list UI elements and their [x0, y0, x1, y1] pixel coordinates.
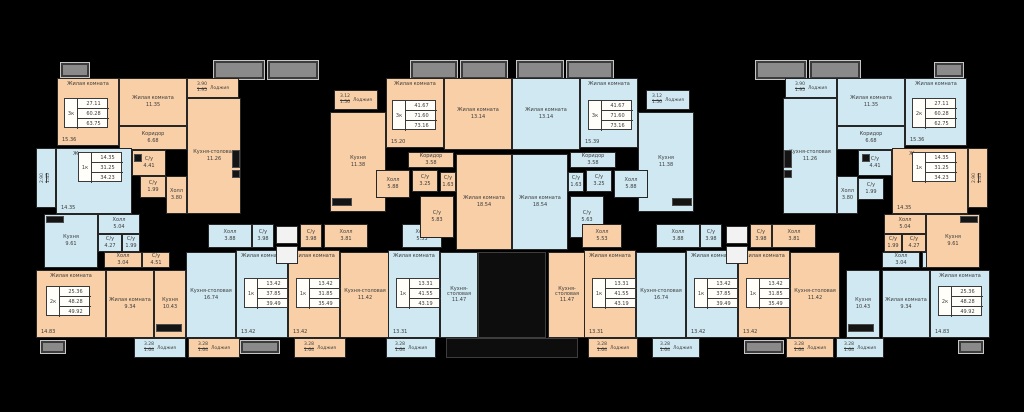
fixture — [156, 324, 182, 332]
apartment-usable-area: 31.85 — [310, 289, 341, 299]
loggia-label: Лоджия — [610, 346, 629, 351]
loggia: 3.281.64Лоджия — [134, 338, 186, 358]
room-label: Кухня — [63, 235, 79, 240]
loggia-content: 3.281.64Лоджия — [844, 343, 876, 353]
room-label: С/у — [421, 175, 429, 180]
apartment-living-area: 41.67 — [406, 101, 437, 111]
room-label: С/у — [757, 230, 765, 235]
room-label: Кухня-столовая — [549, 287, 585, 298]
room-label: С/у — [707, 230, 715, 235]
apartment-info-table: 2к25.3648.2849.92 — [46, 286, 90, 316]
apartment-total-area: 43.19 — [606, 299, 637, 309]
loggia-depth: 1.56 — [340, 100, 350, 106]
room-label: Кухня — [855, 298, 871, 303]
apartment-info-table: 1к14.3531.2534.23 — [78, 152, 122, 182]
apartment-type: 3к — [589, 101, 602, 131]
room-area: 6.68 — [147, 139, 158, 144]
loggia: 3.121.56Лоджия — [646, 90, 690, 110]
room-area: 3.81 — [788, 237, 799, 242]
room-label: С/у — [910, 237, 918, 242]
loggia-label: Лоджия — [353, 98, 372, 103]
room-area: 5.63 — [581, 218, 592, 223]
apartment-info-table: 1к13.4231.8535.49 — [746, 278, 790, 308]
apartment-type: 3к — [393, 101, 406, 131]
loggia-content: 3.281.64Лоджия — [794, 343, 826, 353]
room: С/у3.98 — [252, 224, 274, 248]
balcony — [40, 340, 66, 354]
room-area: 1.99 — [865, 190, 876, 195]
room-label: Коридор — [420, 154, 443, 159]
loggia-content: 3.281.64Лоджия — [395, 343, 427, 353]
room-label: Холл — [596, 230, 609, 235]
room-area: 3.98 — [257, 237, 268, 242]
room: Коридор3.58 — [408, 152, 454, 168]
apartment-type: 1к — [593, 279, 606, 309]
room-area: 15.20 — [391, 140, 405, 145]
apartment-living-area: 41.67 — [602, 101, 633, 111]
apartment-total-area: 35.49 — [760, 299, 791, 309]
loggia-label: Лоджия — [808, 86, 827, 91]
room-area: 10.43 — [163, 305, 177, 310]
room: Жилая комната13.14 — [512, 78, 580, 150]
loggia: 3.121.56Лоджия — [334, 90, 378, 110]
apartment-usable-area: 37.85 — [258, 289, 289, 299]
loggia: 2.901.45 — [968, 148, 988, 208]
loggia-dims: 3.121.56 — [652, 95, 662, 105]
apartment-living-area: 13.42 — [310, 279, 341, 289]
room-area: 15.36 — [910, 138, 924, 143]
room: С/у3.98 — [300, 224, 322, 248]
room-label: Жилая комната — [463, 196, 505, 201]
loggia-content: 3.281.64Лоджия — [144, 343, 176, 353]
room-area: 9.34 — [124, 305, 135, 310]
room-area: 14.83 — [935, 330, 949, 335]
apartment-living-area: 14.35 — [92, 153, 123, 163]
room-label: С/у — [889, 237, 897, 242]
room-area: 11.47 — [452, 298, 466, 303]
room-label: Кухня-столовая — [441, 287, 477, 298]
room-area: 13.31 — [393, 330, 407, 335]
apartment-info-table: 1к13.4237.8539.49 — [244, 278, 288, 308]
apartment-total-area: 73.16 — [406, 121, 437, 131]
room-label: Кухня-столовая — [193, 150, 235, 155]
loggia-content: 3.901.95Лоджия — [197, 83, 229, 93]
room-area: 5.04 — [113, 225, 124, 230]
apartment-usable-area: 31.25 — [92, 163, 123, 173]
room-area: 13.14 — [471, 115, 485, 120]
loggia-dims: 2.901.45 — [973, 173, 983, 183]
apartment-living-area: 13.31 — [606, 279, 637, 289]
balcony — [566, 60, 614, 80]
apartment-type: 1к — [79, 153, 92, 183]
room-area: 9.61 — [65, 242, 76, 247]
apartment-usable-area: 37.85 — [708, 289, 739, 299]
apartment-total-area: 63.75 — [78, 119, 109, 129]
room-label: Кухня — [658, 156, 674, 161]
room-label: Кухня — [945, 235, 961, 240]
room: С/у3.25 — [412, 170, 438, 192]
loggia-label: Лоджия — [408, 346, 427, 351]
balcony — [460, 60, 508, 80]
room-label: Кухня-столовая — [794, 289, 836, 294]
apartment-usable-area: 48.28 — [60, 297, 91, 307]
balcony — [958, 340, 984, 354]
loggia: 3.901.95Лоджия — [785, 78, 837, 98]
room-area: 15.39 — [585, 140, 599, 145]
loggia-content: 2.901.45 — [41, 173, 51, 183]
apartment-type: 1к — [747, 279, 760, 309]
apartment-living-area: 25.36 — [60, 287, 91, 297]
stair-elevator-box — [276, 246, 298, 264]
apartment-total-area: 34.23 — [92, 173, 123, 183]
room-label: Холл — [117, 254, 130, 259]
apartment-living-area: 25.36 — [952, 287, 983, 297]
room-area: 11.26 — [803, 157, 817, 162]
room: Жилая комната18.54 — [512, 154, 568, 250]
room-area: 14.35 — [897, 206, 911, 211]
balcony — [240, 340, 280, 354]
loggia-label: Лоджия — [807, 346, 826, 351]
loggia-label: Лоджия — [665, 98, 684, 103]
room-label: С/у — [583, 211, 591, 216]
room-area: 18.54 — [477, 203, 491, 208]
room-area: 5.53 — [596, 237, 607, 242]
room-label: С/у — [127, 237, 135, 242]
room-area: 9.34 — [900, 305, 911, 310]
apartment-total-area: 49.92 — [60, 307, 91, 317]
loggia: 3.281.64Лоджия — [836, 338, 884, 358]
loggia-label: Лоджия — [317, 346, 336, 351]
loggia: 3.281.64Лоджия — [652, 338, 700, 358]
room: С/у4.27 — [98, 234, 122, 252]
room-label: Холл — [224, 230, 237, 235]
room-label: Кухня-столовая — [789, 150, 831, 155]
room-label: С/у — [444, 176, 452, 181]
loggia-content: 3.281.64Лоджия — [597, 343, 629, 353]
room-area: 3.04 — [117, 261, 128, 266]
balcony — [809, 60, 861, 80]
room-area: 11.35 — [146, 103, 160, 108]
loggia-depth: 1.64 — [198, 348, 208, 354]
loggia: 3.901.95Лоджия — [187, 78, 239, 98]
room-label: Жилая комната — [67, 82, 109, 87]
building-core — [478, 252, 546, 338]
apartment-usable-area: 31.85 — [760, 289, 791, 299]
loggia-content: 3.281.64Лоджия — [660, 343, 692, 353]
room-area: 13.42 — [691, 330, 705, 335]
room-label: Жилая комната — [132, 96, 174, 101]
loggia-content: 2.901.45 — [973, 173, 983, 183]
room-label: С/у — [259, 230, 267, 235]
room-label: Кухня — [350, 156, 366, 161]
room-area: 1.99 — [147, 188, 158, 193]
room-area: 3.80 — [842, 196, 853, 201]
room: С/у1.63 — [440, 172, 456, 192]
room-area: 10.43 — [856, 305, 870, 310]
apartment-total-area: 49.92 — [952, 307, 983, 317]
room-area: 13.14 — [539, 115, 553, 120]
room: Кухня-столовая11.47 — [548, 252, 586, 338]
apartment-info-table: 3к41.6771.6073.16 — [588, 100, 632, 130]
apartment-living-area: 14.35 — [926, 153, 957, 163]
room-area: 3.25 — [593, 182, 604, 187]
fixture — [862, 154, 870, 162]
room-area: 1.99 — [887, 244, 898, 249]
room-area: 3.88 — [672, 237, 683, 242]
loggia-depth: 1.64 — [597, 348, 607, 354]
apartment-type: 2к — [913, 99, 926, 129]
loggia-dims: 3.281.64 — [597, 343, 607, 353]
room-area: 1.99 — [125, 244, 136, 249]
apartment-info-table: 2к27.1160.2862.75 — [912, 98, 956, 128]
room-label: Жилая комната — [525, 108, 567, 113]
balcony — [744, 340, 784, 354]
room-label: Холл — [899, 218, 912, 223]
apartment-info-table: 1к13.3141.5543.19 — [592, 278, 636, 308]
room-label: С/у — [145, 157, 153, 162]
loggia-dims: 3.281.64 — [660, 343, 670, 353]
room: С/у3.98 — [750, 224, 772, 248]
room-label: Кухня-столовая — [344, 289, 386, 294]
apartment-usable-area: 71.60 — [406, 111, 437, 121]
room-area: 4.27 — [104, 244, 115, 249]
loggia-dims: 3.281.64 — [198, 343, 208, 353]
room-label: Жилая комната — [850, 96, 892, 101]
room-area: 3.04 — [895, 261, 906, 266]
apartment-total-area: 39.49 — [708, 299, 739, 309]
apartment-type: 1к — [397, 279, 410, 309]
apartment-type: 2к — [47, 287, 60, 317]
room: С/у1.99 — [122, 234, 140, 252]
room: Холл3.04 — [104, 252, 142, 268]
balcony — [267, 60, 319, 80]
apartment-usable-area: 71.60 — [602, 111, 633, 121]
apartment-usable-area: 60.28 — [926, 109, 957, 119]
room: Жилая комната11.35 — [837, 78, 905, 126]
room-area: 5.04 — [899, 225, 910, 230]
room: Жилая комната11.35 — [119, 78, 187, 126]
fixture — [134, 154, 142, 162]
apartment-total-area: 43.19 — [410, 299, 441, 309]
room-label: Жилая комната — [743, 254, 785, 259]
fixture — [332, 198, 352, 206]
loggia-content: 3.281.64Лоджия — [198, 343, 230, 353]
balcony — [516, 60, 564, 80]
loggia-depth: 1.45 — [46, 173, 52, 183]
room-label: Кухня-столовая — [190, 289, 232, 294]
room-label: Холл — [625, 178, 638, 183]
loggia-depth: 1.95 — [197, 88, 207, 94]
room-area: 5.83 — [431, 218, 442, 223]
loggia-depth: 1.56 — [652, 100, 662, 106]
loggia: 3.281.64Лоджия — [386, 338, 436, 358]
room: С/у3.98 — [700, 224, 722, 248]
apartment-type: 2к — [939, 287, 952, 317]
room: Коридор6.68 — [837, 126, 905, 150]
room-area: 3.81 — [340, 237, 351, 242]
room-area: 16.74 — [204, 296, 218, 301]
room-label: Кухня-столовая — [640, 289, 682, 294]
room-area: 6.68 — [865, 139, 876, 144]
room: С/у1.99 — [140, 176, 166, 198]
room-label: С/у — [867, 183, 875, 188]
room-area: 11.42 — [358, 296, 372, 301]
room-label: С/у — [433, 211, 441, 216]
room: С/у1.63 — [568, 172, 584, 192]
room: Холл5.88 — [376, 170, 410, 198]
apartment-info-table: 1к13.3141.5543.19 — [396, 278, 440, 308]
room: Холл3.88 — [656, 224, 700, 248]
room-label: Жилая комната — [50, 274, 92, 279]
room-area: 3.80 — [171, 196, 182, 201]
room-area: 16.74 — [654, 296, 668, 301]
room: Холл3.80 — [166, 176, 187, 214]
room-area: 13.42 — [241, 330, 255, 335]
room: С/у5.83 — [420, 196, 454, 238]
room: С/у3.25 — [586, 170, 612, 192]
room-label: Жилая комната — [589, 254, 631, 259]
room-area: 3.88 — [224, 237, 235, 242]
room: С/у4.51 — [142, 252, 170, 268]
apartment-type: 1к — [297, 279, 310, 309]
room-area: 14.35 — [61, 206, 75, 211]
room: С/у1.99 — [858, 178, 884, 200]
loggia-content: 3.901.95Лоджия — [795, 83, 827, 93]
loggia-dims: 2.901.45 — [41, 173, 51, 183]
apartment-info-table: 1к13.4237.8539.49 — [694, 278, 738, 308]
loggia-content: 3.121.56Лоджия — [652, 95, 684, 105]
loggia-label: Лоджия — [673, 346, 692, 351]
loggia-label: Лоджия — [211, 346, 230, 351]
loggia-depth: 1.64 — [144, 348, 154, 354]
room-label: Коридор — [142, 132, 165, 137]
room-label: Холл — [672, 230, 685, 235]
room-area: 4.41 — [869, 164, 880, 169]
loggia: 3.281.64Лоджия — [588, 338, 638, 358]
room-area: 1.63 — [442, 183, 453, 188]
room: Жилая комната13.14 — [444, 78, 512, 150]
room-area: 3.58 — [425, 161, 436, 166]
fixture — [784, 150, 792, 168]
room-area: 3.25 — [419, 182, 430, 187]
room-area: 15.36 — [62, 138, 76, 143]
room: С/у4.27 — [902, 234, 926, 252]
apartment-info-table: 3к27.1160.2863.75 — [64, 98, 108, 128]
room-area: 4.41 — [143, 164, 154, 169]
apartment-living-area: 13.42 — [258, 279, 289, 289]
fixture — [232, 170, 240, 178]
room-label: С/у — [152, 254, 160, 259]
room-area: 13.31 — [589, 330, 603, 335]
apartment-type: 1к — [913, 153, 926, 183]
room: Кухня-столовая11.42 — [340, 252, 390, 338]
room: Холл5.04 — [884, 214, 926, 234]
apartment-usable-area: 48.28 — [952, 297, 983, 307]
room-label: Жилая комната — [109, 298, 151, 303]
room-label: Жилая комната — [393, 254, 435, 259]
loggia-depth: 1.64 — [844, 348, 854, 354]
loggia-depth: 1.95 — [795, 88, 805, 94]
room-label: Жилая комната — [394, 82, 436, 87]
room-area: 5.88 — [625, 185, 636, 190]
apartment-living-area: 27.11 — [78, 99, 109, 109]
room-area: 1.63 — [570, 183, 581, 188]
loggia-dims: 3.281.64 — [794, 343, 804, 353]
apartment-usable-area: 41.55 — [606, 289, 637, 299]
room: Кухня-столовая16.74 — [186, 252, 236, 338]
loggia-label: Лоджия — [210, 86, 229, 91]
stair-elevator-box — [726, 226, 748, 244]
room-label: Холл — [170, 189, 183, 194]
room-area: 11.42 — [808, 296, 822, 301]
room: Холл5.88 — [614, 170, 648, 198]
loggia-label: Лоджия — [157, 346, 176, 351]
room-label: Холл — [340, 230, 353, 235]
room: Кухня-столовая11.42 — [790, 252, 840, 338]
loggia-dims: 3.281.64 — [844, 343, 854, 353]
apartment-type: 1к — [245, 279, 258, 309]
loggia-depth: 1.64 — [304, 348, 314, 354]
apartment-info-table: 3к41.6771.6073.16 — [392, 100, 436, 130]
apartment-info-table: 1к14.3531.2534.23 — [912, 152, 956, 182]
room-area: 3.98 — [755, 237, 766, 242]
room-label: Жилая комната — [457, 108, 499, 113]
fixture — [46, 216, 64, 223]
apartment-living-area: 13.42 — [708, 279, 739, 289]
apartment-info-table: 2к25.3648.2849.92 — [938, 286, 982, 316]
apartment-total-area: 34.23 — [926, 173, 957, 183]
apartment-usable-area: 41.55 — [410, 289, 441, 299]
apartment-living-area: 13.42 — [760, 279, 791, 289]
balcony — [755, 60, 807, 80]
room: Кухня-столовая11.47 — [440, 252, 478, 338]
room: Коридор3.58 — [570, 152, 616, 168]
apartment-living-area: 27.11 — [926, 99, 957, 109]
room-label: Холл — [387, 178, 400, 183]
room: Холл5.04 — [98, 214, 140, 234]
room: Холл3.88 — [208, 224, 252, 248]
loggia: 3.281.64Лоджия — [188, 338, 240, 358]
room-area: 13.42 — [743, 330, 757, 335]
loggia-depth: 1.45 — [978, 173, 984, 183]
apartment-total-area: 39.49 — [258, 299, 289, 309]
room-area: 4.27 — [908, 244, 919, 249]
room-label: С/у — [149, 181, 157, 186]
room-label: Жилая комната — [939, 274, 981, 279]
balcony — [410, 60, 458, 80]
room-label: Холл — [788, 230, 801, 235]
loggia: 3.281.64Лоджия — [786, 338, 834, 358]
room: Жилая комната9.34 — [106, 270, 154, 338]
room-label: Холл — [113, 218, 126, 223]
room-label: Холл — [841, 189, 854, 194]
room-label: Жилая комната — [519, 196, 561, 201]
apartment-usable-area: 31.25 — [926, 163, 957, 173]
room: Холл3.04 — [882, 252, 920, 268]
room-area: 18.54 — [533, 203, 547, 208]
loggia-dims: 3.121.56 — [340, 95, 350, 105]
room-label: С/у — [871, 157, 879, 162]
room: Жилая комната18.54 — [456, 154, 512, 250]
room-label: С/у — [307, 230, 315, 235]
loggia-depth: 1.64 — [395, 348, 405, 354]
loggia-depth: 1.64 — [794, 348, 804, 354]
loggia: 3.281.64Лоджия — [294, 338, 346, 358]
room: С/у1.99 — [884, 234, 902, 252]
loggia-dims: 3.281.64 — [144, 343, 154, 353]
room: Холл3.81 — [772, 224, 816, 248]
building-core — [446, 338, 578, 358]
